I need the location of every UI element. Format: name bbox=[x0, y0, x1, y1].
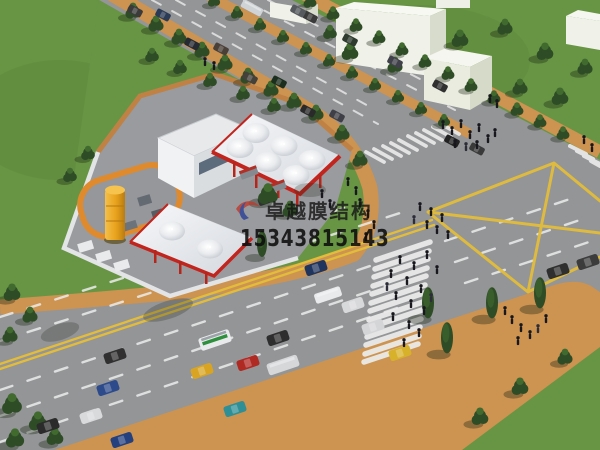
building-right-edge bbox=[566, 10, 600, 50]
rendering-image: 卓越膜结构 15343815143 bbox=[0, 0, 600, 450]
scene-canvas bbox=[0, 0, 600, 450]
storage-tank bbox=[104, 186, 126, 245]
crosswalk-bottom-road bbox=[364, 242, 430, 362]
building-cube bbox=[424, 48, 492, 110]
